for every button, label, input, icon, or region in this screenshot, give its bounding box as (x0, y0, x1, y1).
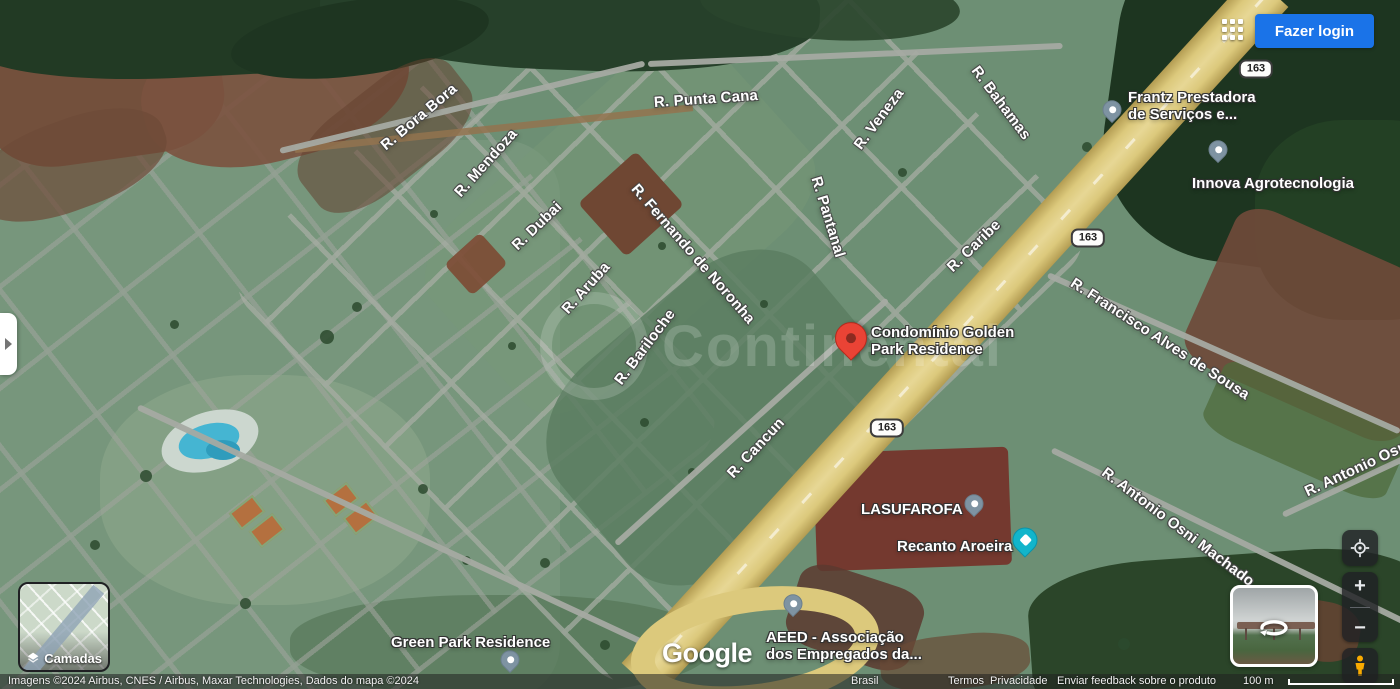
attribution-link-termos[interactable]: Termos (948, 675, 984, 687)
zoom-in-button[interactable]: + (1342, 576, 1378, 596)
poi-label-innova-agrotecnologia[interactable]: Innova Agrotecnologia (1192, 175, 1354, 192)
poi-label-recanto-aroeira[interactable]: Recanto Aroeira (897, 538, 1012, 555)
my-location-button[interactable] (1342, 530, 1378, 566)
google-logo[interactable]: Google (662, 638, 752, 669)
scale-label: 100 m (1243, 675, 1274, 687)
side-panel-expand-tab[interactable] (0, 313, 17, 375)
login-button[interactable]: Fazer login (1255, 14, 1374, 48)
compass-target-icon (1350, 538, 1370, 558)
imagery-credits: Imagens ©2024 Airbus, CNES / Airbus, Max… (8, 675, 419, 687)
scale-bar (1288, 679, 1394, 685)
chevron-right-icon (5, 338, 12, 350)
layers-icon (26, 650, 40, 666)
attribution-bar: Imagens ©2024 Airbus, CNES / Airbus, Max… (0, 674, 1400, 689)
attribution-link-enviar-feedback-sobre-o-produto[interactable]: Enviar feedback sobre o produto (1057, 675, 1216, 687)
layers-label: Camadas (44, 651, 102, 666)
map-canvas[interactable]: Continental R. Bora BoraR. Punta CanaR. … (0, 0, 1400, 689)
route-shield-163: 163 (870, 419, 904, 438)
zoom-control: + − (1342, 572, 1378, 642)
attribution-link-privacidade[interactable]: Privacidade (990, 675, 1047, 687)
poi-label-frantz-prestadora[interactable]: Frantz Prestadorade Serviços e... (1128, 89, 1256, 123)
poi-pin-recanto-aroeira[interactable] (1007, 522, 1042, 557)
route-shield-163: 163 (1239, 60, 1273, 79)
360-rotate-icon (1257, 616, 1291, 636)
poi-label-aeed-associacao[interactable]: AEED - Associaçãodos Empregados da... (766, 629, 922, 663)
layers-button[interactable]: Camadas (18, 582, 110, 672)
google-apps-grid-icon[interactable] (1222, 19, 1246, 43)
attribution-link-brasil[interactable]: Brasil (851, 675, 879, 687)
zoom-out-button[interactable]: − (1342, 618, 1378, 638)
poi-label-condominio-golden-park[interactable]: Condomínio GoldenPark Residence (871, 324, 1014, 358)
poi-label-green-park-residence[interactable]: Green Park Residence (391, 634, 550, 651)
streetview-photo-preview[interactable] (1230, 585, 1318, 667)
poi-label-lasufarofa[interactable]: LASUFAROFA (861, 501, 963, 518)
route-shield-163: 163 (1071, 229, 1105, 248)
